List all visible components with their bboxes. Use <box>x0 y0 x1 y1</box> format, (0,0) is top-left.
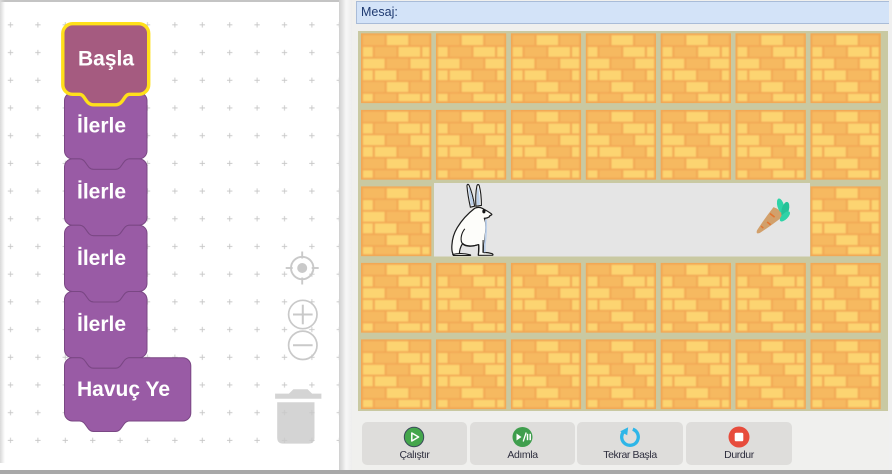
svg-text:İlerle: İlerle <box>77 181 126 204</box>
svg-text:Başla: Başla <box>78 48 134 71</box>
svg-text:İlerle: İlerle <box>77 114 126 137</box>
svg-text:Çalıştır: Çalıştır <box>399 449 430 461</box>
svg-text:Durdur: Durdur <box>724 449 755 461</box>
svg-text:Tekrar Başla: Tekrar Başla <box>603 449 657 461</box>
svg-text:Havuç Ye: Havuç Ye <box>77 378 170 401</box>
svg-text:İlerle: İlerle <box>77 247 126 270</box>
svg-text:Adımla: Adımla <box>507 449 538 461</box>
svg-text:İlerle: İlerle <box>77 313 126 336</box>
